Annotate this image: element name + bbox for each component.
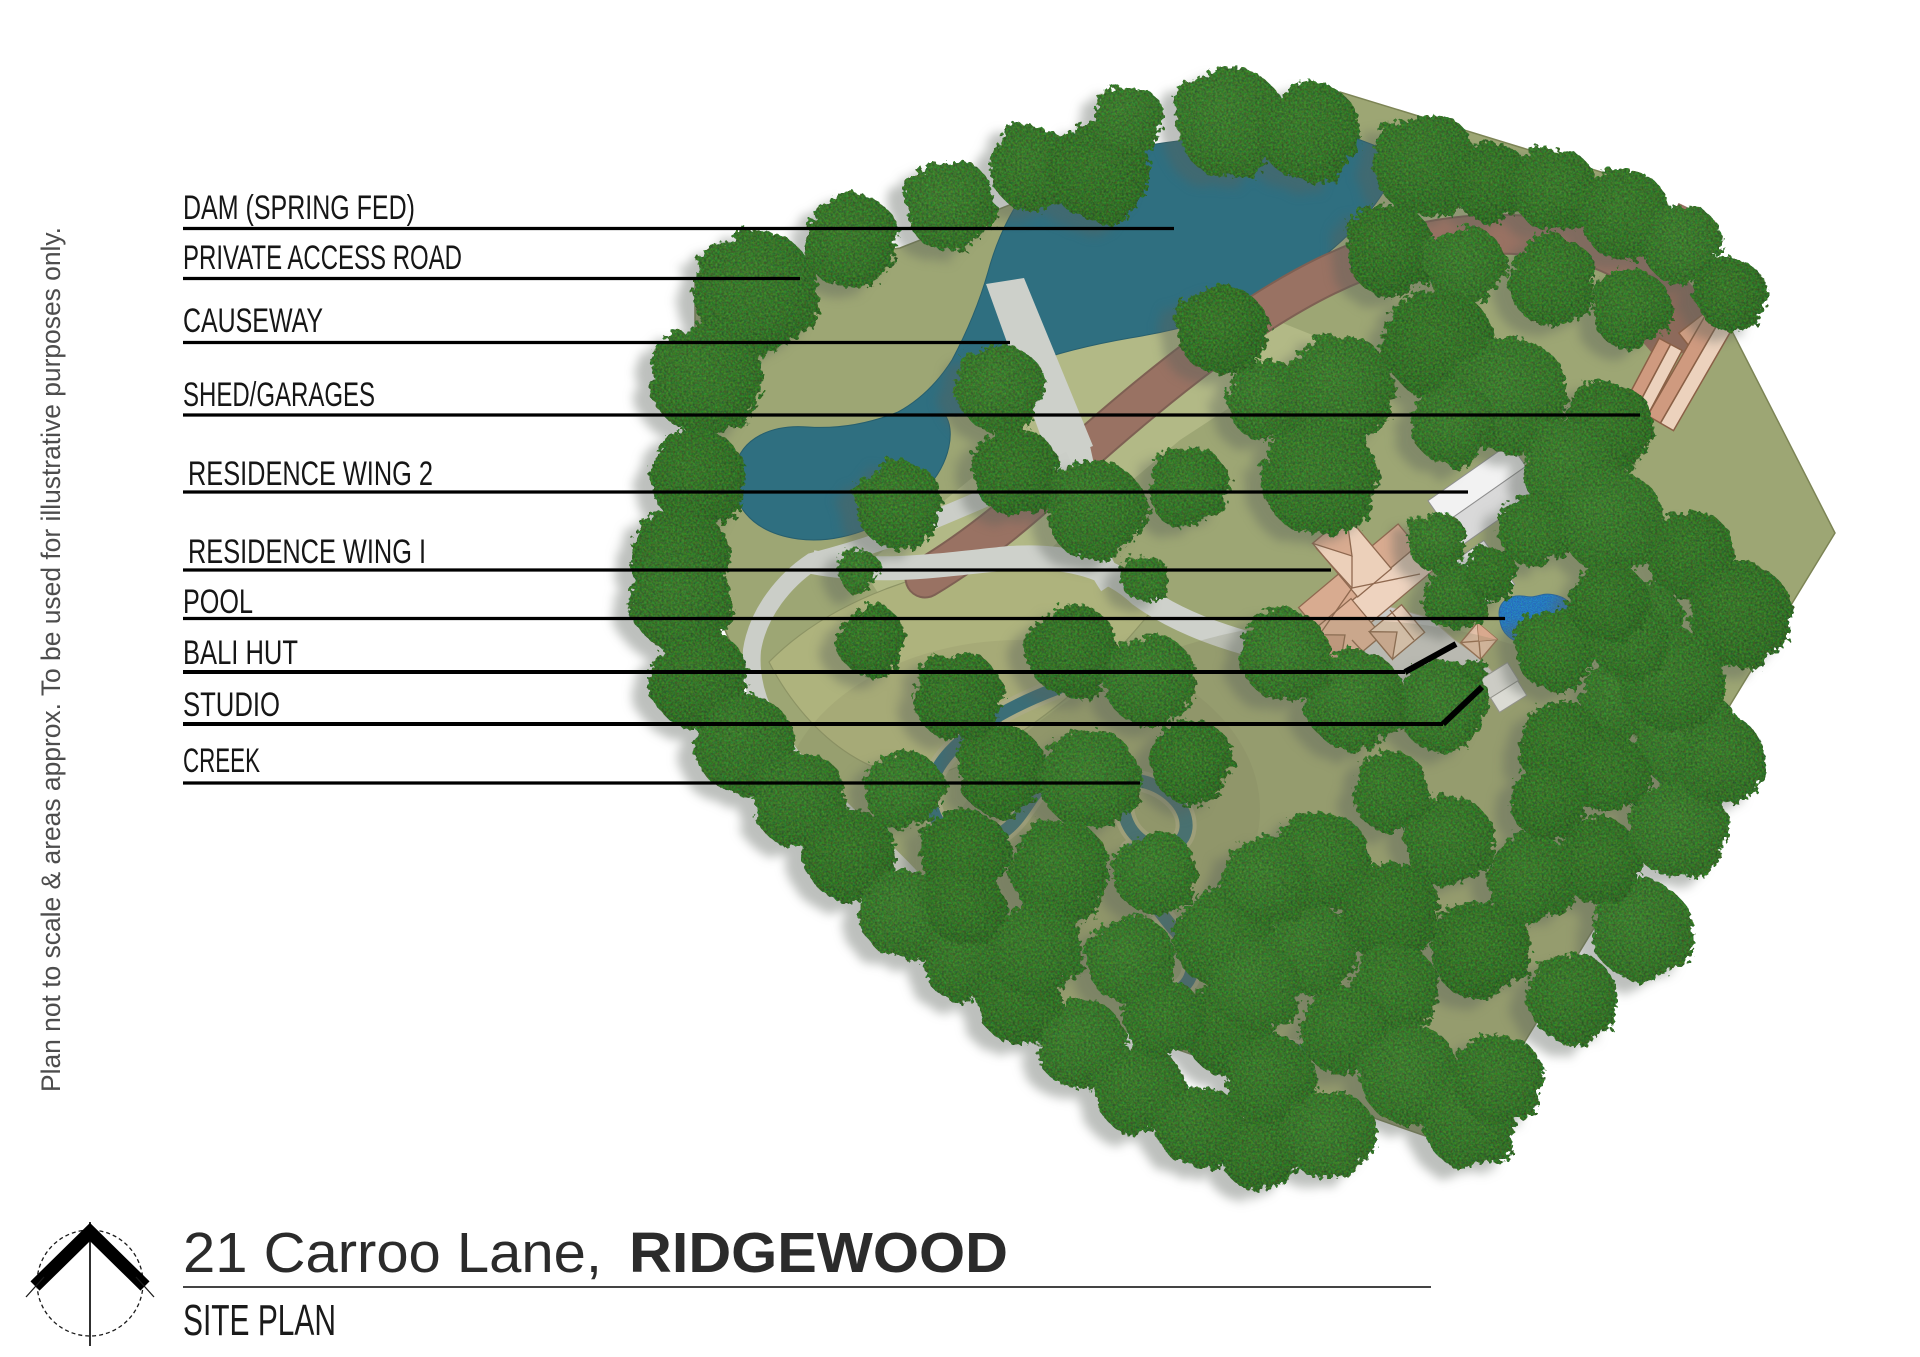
svg-text:DAM (SPRING FED): DAM (SPRING FED): [183, 189, 415, 227]
svg-text:PRIVATE ACCESS ROAD: PRIVATE ACCESS ROAD: [183, 239, 462, 277]
svg-text:SHED/GARAGES: SHED/GARAGES: [183, 376, 375, 414]
svg-text:STUDIO: STUDIO: [183, 686, 280, 724]
svg-text:CREEK: CREEK: [183, 742, 260, 780]
svg-text:Plan not to scale & areas appr: Plan not to scale & areas approx. To be …: [36, 227, 66, 1092]
svg-text:RESIDENCE WING 2: RESIDENCE WING 2: [188, 455, 433, 493]
svg-text:RIDGEWOOD: RIDGEWOOD: [629, 1221, 1008, 1285]
svg-text:21 Carroo Lane,: 21 Carroo Lane,: [183, 1221, 602, 1285]
svg-text:RESIDENCE WING I: RESIDENCE WING I: [188, 533, 426, 571]
svg-text:CAUSEWAY: CAUSEWAY: [183, 302, 323, 340]
svg-text:POOL: POOL: [183, 583, 253, 621]
svg-text:SITE PLAN: SITE PLAN: [183, 1296, 336, 1345]
svg-text:BALI HUT: BALI HUT: [183, 634, 298, 672]
